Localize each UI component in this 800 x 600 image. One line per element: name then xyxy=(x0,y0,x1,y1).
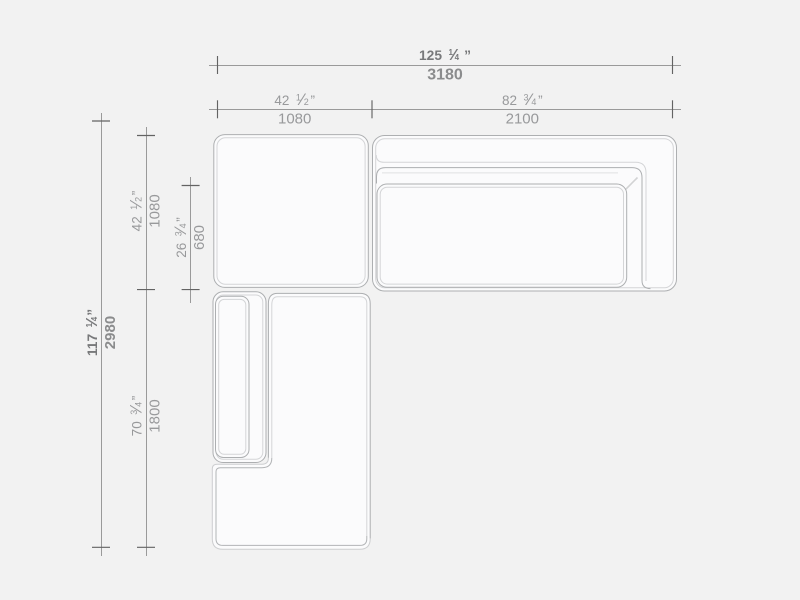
svg-text:1080: 1080 xyxy=(278,110,311,127)
svg-text:2100: 2100 xyxy=(506,110,539,127)
svg-text:680: 680 xyxy=(191,225,208,250)
svg-text:3180: 3180 xyxy=(427,67,463,84)
svg-text:1800: 1800 xyxy=(147,399,164,432)
svg-text:1080: 1080 xyxy=(147,194,164,227)
svg-text:2980: 2980 xyxy=(102,316,119,349)
